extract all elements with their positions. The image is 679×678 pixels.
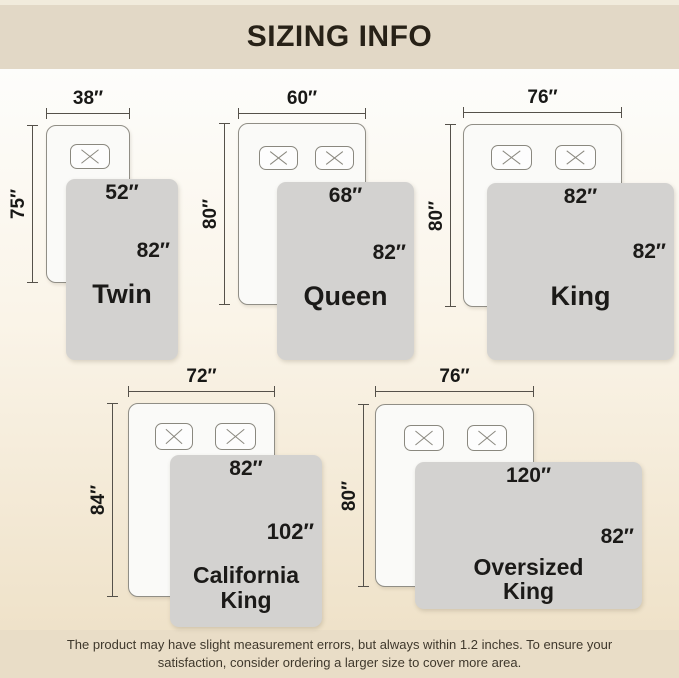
size-name-label: California King <box>176 563 316 613</box>
pillow-x-icon <box>216 424 255 449</box>
bed-width-dimension: 76″ <box>463 90 622 113</box>
pillow-x-icon <box>492 146 531 169</box>
blanket-length-label: 82″ <box>601 525 634 549</box>
pillow <box>491 145 532 170</box>
blanket-width-label: 120″ <box>415 464 642 488</box>
bed-length-label: 80″ <box>339 480 361 510</box>
bed-width-label: 38″ <box>46 88 130 110</box>
blanket: 82″ 82″ King <box>487 183 674 360</box>
pillow <box>315 146 354 170</box>
bed-length-label: 84″ <box>88 485 110 515</box>
blanket: 120″ 82″ Oversized King <box>415 462 642 609</box>
blanket-length-label: 102″ <box>267 519 314 545</box>
disclaimer-line-1: The product may have slight measurement … <box>67 637 612 653</box>
bed-width-dimension: 60″ <box>238 91 366 114</box>
dimension-line <box>128 391 275 392</box>
bed-width-dimension: 76″ <box>375 369 534 392</box>
sizing-info-page: SIZING INFO 38″ 75″ 52″ 82″ Twin <box>0 0 679 678</box>
blanket: 52″ 82″ Twin <box>66 179 178 360</box>
header-top-strip <box>0 0 679 5</box>
pillow <box>404 425 444 451</box>
blanket-width-label: 68″ <box>277 184 414 208</box>
blanket-length-label: 82″ <box>373 241 406 265</box>
dimension-line <box>238 113 366 114</box>
dimension-line <box>224 123 225 305</box>
bed-length-dimension: 75″ <box>32 125 33 283</box>
bed-length-dimension: 80″ <box>363 404 364 587</box>
bed-width-label: 60″ <box>238 88 366 110</box>
pillow-x-icon <box>405 426 443 450</box>
disclaimer-footer: The product may have slight measurement … <box>0 630 679 678</box>
page-title: SIZING INFO <box>247 20 433 54</box>
bed-width-dimension: 72″ <box>128 369 275 392</box>
bed-length-dimension: 80″ <box>450 124 451 307</box>
pillow <box>259 146 298 170</box>
blanket-width-label: 82″ <box>487 185 674 209</box>
pillow <box>70 144 110 169</box>
size-name-label: Queen <box>277 282 414 311</box>
dimension-line <box>32 125 33 283</box>
pillow <box>155 423 193 450</box>
size-name-label: King <box>487 282 674 311</box>
bed-length-label: 80″ <box>426 200 448 230</box>
dimension-line <box>363 404 364 587</box>
pillow <box>467 425 507 451</box>
bed-width-dimension: 38″ <box>46 91 130 114</box>
blanket-length-label: 82″ <box>633 240 666 264</box>
blanket-length-label: 82″ <box>137 239 170 263</box>
bed-length-label: 75″ <box>8 189 30 219</box>
bed-length-dimension: 84″ <box>112 403 113 597</box>
dimension-line <box>375 391 534 392</box>
blanket-width-label: 82″ <box>170 457 322 481</box>
size-name-label: Oversized King <box>454 555 604 605</box>
blanket: 82″ 102″ California King <box>170 455 322 627</box>
pillow <box>215 423 256 450</box>
disclaimer-line-2: satisfaction, consider ordering a larger… <box>158 655 521 671</box>
page-header: SIZING INFO <box>0 0 679 69</box>
bed-length-dimension: 80″ <box>224 123 225 305</box>
pillow-x-icon <box>156 424 192 449</box>
pillow-x-icon <box>468 426 506 450</box>
size-name-label: Twin <box>66 280 178 309</box>
pillow <box>555 145 596 170</box>
pillow-x-icon <box>316 147 353 169</box>
pillow-x-icon <box>556 146 595 169</box>
bed-width-label: 76″ <box>463 87 622 109</box>
bed-length-label: 80″ <box>200 199 222 229</box>
bed-width-label: 76″ <box>375 366 534 388</box>
blanket-width-label: 52″ <box>66 181 178 205</box>
dimension-line <box>450 124 451 307</box>
pillow-x-icon <box>71 145 109 168</box>
blanket: 68″ 82″ Queen <box>277 182 414 360</box>
bed-width-label: 72″ <box>128 366 275 388</box>
pillow-x-icon <box>260 147 297 169</box>
dimension-line <box>463 112 622 113</box>
dimension-line <box>112 403 113 597</box>
dimension-line <box>46 113 130 114</box>
